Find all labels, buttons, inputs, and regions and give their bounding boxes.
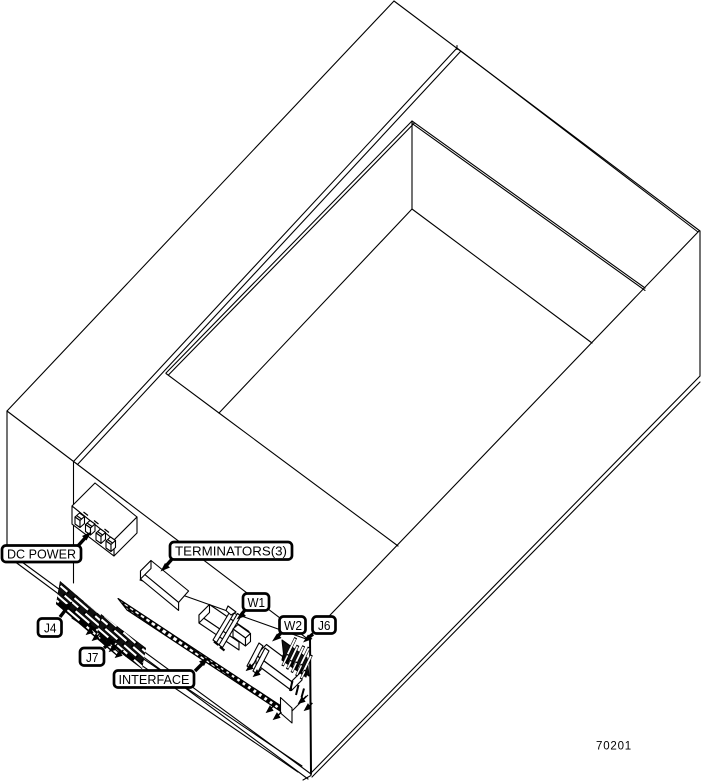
svg-text:J6: J6 bbox=[318, 618, 331, 633]
svg-text:J4: J4 bbox=[44, 620, 57, 635]
svg-text:TERMINATORS(3): TERMINATORS(3) bbox=[175, 544, 287, 559]
svg-text:DC POWER: DC POWER bbox=[7, 547, 76, 562]
svg-text:INTERFACE: INTERFACE bbox=[119, 672, 190, 687]
svg-text:W2: W2 bbox=[284, 618, 302, 633]
svg-text:W1: W1 bbox=[248, 595, 266, 610]
svg-text:70201: 70201 bbox=[596, 741, 632, 753]
svg-text:J7: J7 bbox=[86, 650, 99, 665]
